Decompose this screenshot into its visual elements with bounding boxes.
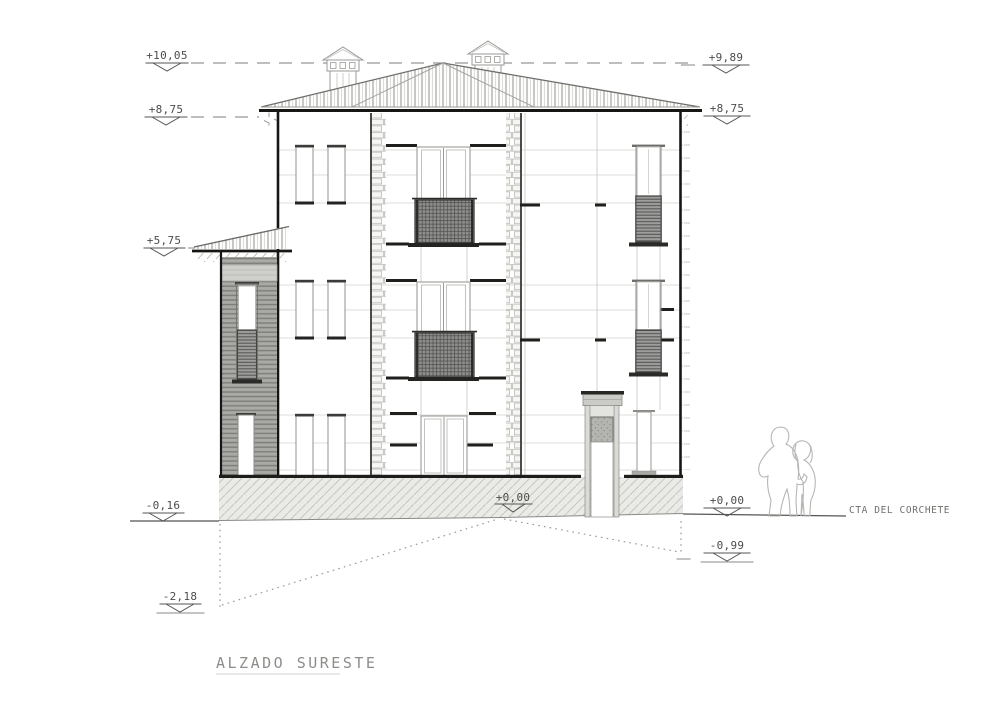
door-opening [591, 442, 613, 517]
level-label-eave-left: +8,75 [149, 103, 184, 116]
scale-figures [759, 427, 816, 516]
foundation-dotted-lines [220, 519, 681, 607]
door-lintel-panel [590, 406, 614, 417]
french-door-mid [417, 282, 470, 334]
level-label-street-low: -0,99 [710, 539, 745, 552]
level-marker-annex-roof: +5,75 [144, 234, 185, 256]
level-label-top-left: +10,05 [146, 49, 188, 62]
plinth-top-right [624, 475, 683, 478]
level-label-ground-center: +0,00 [496, 491, 531, 504]
door-jamb-left [585, 406, 590, 517]
level-marker-eave-left: +8,75 [145, 103, 187, 125]
entrance-door [581, 391, 624, 517]
door-cap [581, 391, 624, 395]
plinth-hatch [219, 477, 683, 521]
quoin-chain-left [370, 113, 386, 476]
ground-line-right [683, 514, 846, 516]
main-facade [278, 111, 690, 518]
figure-man-outline [759, 427, 807, 516]
window-left-top-1 [295, 145, 314, 205]
door-entablature [583, 395, 622, 406]
door-jamb-right [614, 406, 619, 517]
window-left-mid-2 [327, 280, 346, 340]
level-marker-ground-right: +0,00 [704, 494, 750, 516]
level-marker-top-right: +9,89 [703, 51, 749, 73]
window-left-mid-1 [295, 280, 314, 340]
level-label-annex-roof: +5,75 [147, 234, 182, 247]
elevation-drawing: +10,05 +8,75 +5,75 -0,16 -2,18 +9,89 [0, 0, 1000, 707]
street-label: CTA DEL CORCHETE [849, 505, 950, 516]
balcony-top [408, 199, 479, 247]
drawing-title-block: ALZADO SURESTE [216, 654, 377, 674]
level-marker-ground-left: -0,16 [143, 499, 184, 521]
level-label-eave-right: +8,75 [710, 102, 745, 115]
door-transom-panel [591, 417, 613, 442]
annex-window-upper [232, 282, 262, 384]
french-window-ground [421, 416, 467, 476]
level-label-top-right: +9,89 [709, 51, 744, 64]
french-door-top [417, 147, 470, 201]
level-marker-top-left: +10,05 [146, 49, 188, 71]
window-left-ground-1 [295, 414, 314, 476]
level-label-basement: -2,18 [163, 590, 198, 603]
annex-frieze-band [222, 265, 277, 281]
annex-window-lower [236, 413, 256, 476]
balcony-mid [408, 332, 479, 381]
plinth-top-left [219, 475, 581, 478]
level-label-ground-right: +0,00 [710, 494, 745, 507]
window-left-ground-2 [327, 414, 346, 476]
level-label-ground-left: -0,16 [146, 499, 181, 512]
level-marker-street-low: -0,99 [677, 539, 753, 562]
level-marker-basement: -2,18 [157, 590, 204, 613]
window-left-top-2 [327, 145, 346, 205]
level-marker-eave-right: +8,75 [704, 102, 750, 124]
corner-quoin-ticks [682, 122, 690, 470]
plinth [219, 475, 683, 521]
quoin-chain-right [506, 113, 522, 476]
drawing-title: ALZADO SURESTE [216, 654, 377, 672]
elevation-drawing-sheet: +10,05 +8,75 +5,75 -0,16 -2,18 +9,89 [0, 0, 1000, 707]
